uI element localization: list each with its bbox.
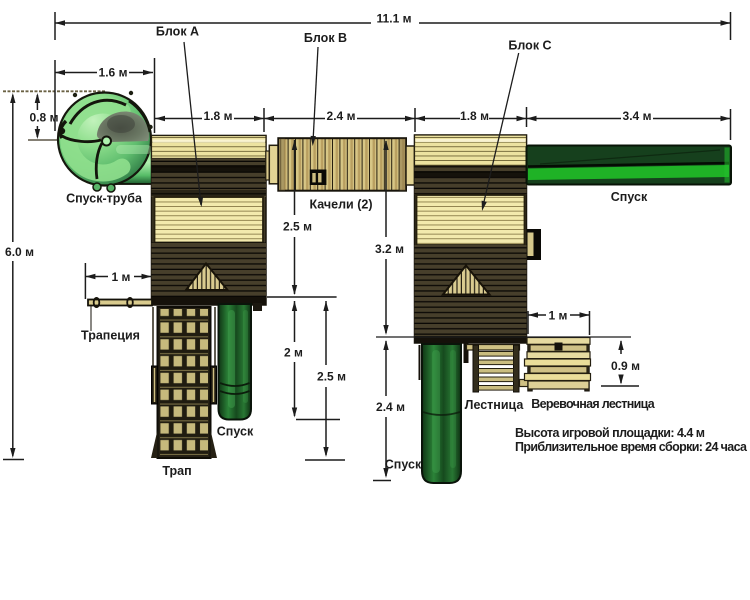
svg-text:Блок B: Блок B <box>304 31 347 45</box>
svg-text:Спуск: Спуск <box>217 425 254 439</box>
svg-text:Спуск-труба: Спуск-труба <box>66 192 143 206</box>
svg-text:2.4 м: 2.4 м <box>376 400 405 414</box>
svg-text:Трап: Трап <box>162 464 191 478</box>
svg-text:1.8 м: 1.8 м <box>460 109 489 123</box>
svg-text:Трапеция: Трапеция <box>81 329 140 343</box>
svg-text:Спуск: Спуск <box>611 190 648 204</box>
svg-text:Блок A: Блок A <box>156 25 199 39</box>
svg-text:Качели (2): Качели (2) <box>309 198 372 212</box>
svg-text:2 м: 2 м <box>284 346 303 360</box>
svg-text:Веревочная лестница: Веревочная лестница <box>531 397 656 411</box>
svg-text:1.8 м: 1.8 м <box>204 109 233 123</box>
svg-text:2.5 м: 2.5 м <box>283 220 312 234</box>
svg-text:Высота игровой площадки: 4.4: Высота игровой площадки: 4.4 м <box>515 426 705 440</box>
svg-text:2.4 м: 2.4 м <box>327 109 356 123</box>
svg-text:11.1 м: 11.1 м <box>377 12 412 26</box>
svg-text:Спуск: Спуск <box>385 458 422 472</box>
svg-text:Лестница: Лестница <box>465 398 525 412</box>
svg-text:Приблизительное время сборки:: Приблизительное время сборки: 24 часа <box>515 440 748 454</box>
svg-text:3.4 м: 3.4 м <box>623 109 652 123</box>
svg-text:2.5 м: 2.5 м <box>317 370 346 384</box>
svg-text:1.6 м: 1.6 м <box>99 66 128 80</box>
svg-text:1 м: 1 м <box>112 270 131 284</box>
svg-text:Блок C: Блок C <box>508 39 551 53</box>
svg-text:1 м: 1 м <box>549 309 568 323</box>
svg-text:6.0 м: 6.0 м <box>5 245 34 259</box>
svg-text:0.9 м: 0.9 м <box>611 359 640 373</box>
svg-text:0.8 м: 0.8 м <box>30 111 59 125</box>
svg-text:3.2 м: 3.2 м <box>375 242 404 256</box>
